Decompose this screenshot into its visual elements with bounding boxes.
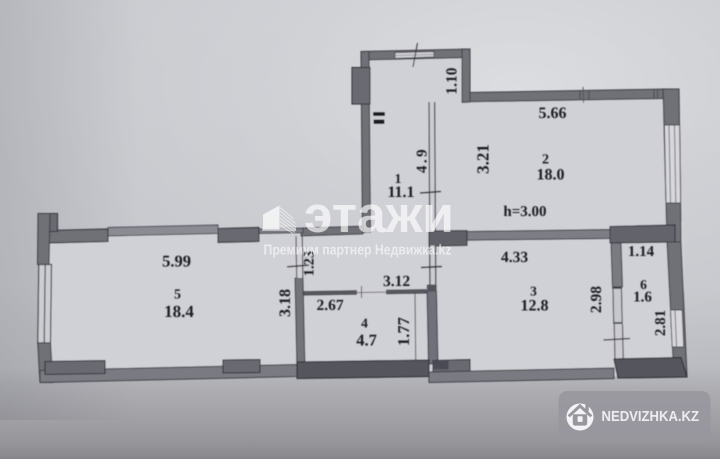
svg-text:12.8: 12.8 bbox=[521, 298, 549, 315]
svg-text:1.14: 1.14 bbox=[628, 244, 655, 260]
svg-text:4: 4 bbox=[361, 316, 368, 331]
svg-text:2.98: 2.98 bbox=[588, 286, 605, 313]
svg-text:1.77: 1.77 bbox=[394, 317, 413, 346]
svg-text:2.67: 2.67 bbox=[316, 297, 343, 314]
svg-text:5: 5 bbox=[174, 288, 181, 303]
svg-text:1.10: 1.10 bbox=[444, 67, 461, 94]
svg-text:1.6: 1.6 bbox=[633, 290, 652, 306]
svg-text:2.81: 2.81 bbox=[653, 310, 669, 336]
svg-text:этажи: этажи bbox=[304, 186, 454, 243]
svg-text:4.33: 4.33 bbox=[501, 249, 528, 266]
svg-text:NEDVIZHKA.KZ: NEDVIZHKA.KZ bbox=[602, 409, 700, 425]
svg-text:2: 2 bbox=[542, 153, 549, 168]
svg-text:h=3.00: h=3.00 bbox=[503, 204, 546, 220]
svg-text:3.18: 3.18 bbox=[277, 289, 294, 317]
svg-text:3.21: 3.21 bbox=[474, 144, 493, 174]
svg-text:18.4: 18.4 bbox=[164, 302, 194, 321]
svg-text:3: 3 bbox=[530, 284, 537, 299]
svg-text:18.0: 18.0 bbox=[537, 167, 565, 184]
svg-text:4.7: 4.7 bbox=[356, 331, 377, 350]
svg-text:5.99: 5.99 bbox=[162, 252, 191, 271]
svg-text:5.66: 5.66 bbox=[539, 105, 567, 122]
svg-text:4.9: 4.9 bbox=[415, 147, 431, 173]
svg-text:Премиум партнер Недвижка.kz: Премиум партнер Недвижка.kz bbox=[264, 243, 452, 259]
svg-text:3.12: 3.12 bbox=[383, 273, 410, 290]
